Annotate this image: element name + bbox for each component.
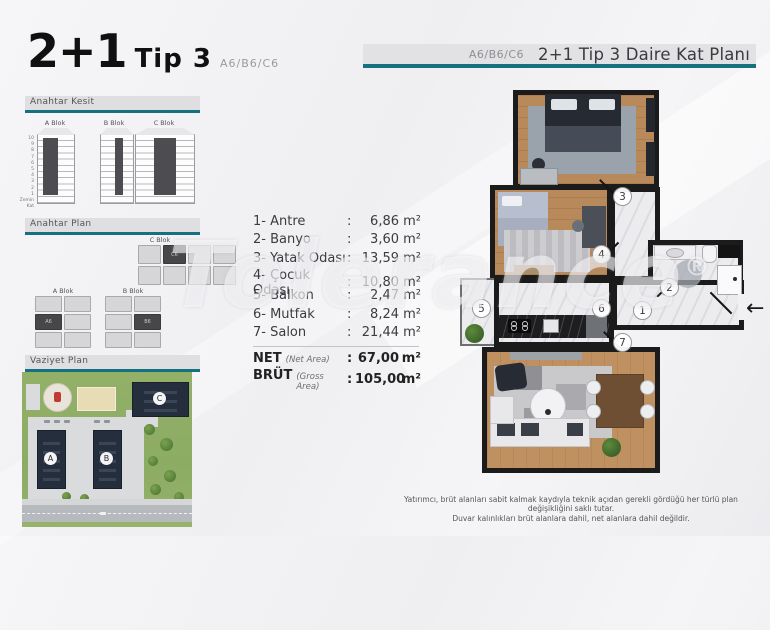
unit: m² (399, 251, 421, 266)
key-unit (105, 296, 132, 312)
room-marker-5: 5 (472, 299, 491, 318)
room-row: 5- Balkon:2,47m² (253, 286, 421, 305)
sep: : (347, 372, 355, 387)
sep: : (347, 232, 355, 247)
key-unit (134, 296, 161, 312)
sep: : (347, 251, 355, 266)
unit: m² (399, 325, 421, 340)
highlight-column-b (115, 138, 123, 194)
sep: : (347, 351, 355, 366)
net-value: 67,00 (355, 351, 399, 366)
elevation-block-a (37, 134, 75, 204)
room-row: 2- Banyo:3,60m² (253, 231, 421, 250)
title-block: 2+1Tip 3A6/B6/C6 (27, 24, 279, 78)
sep: : (347, 288, 355, 303)
key-unit (163, 266, 186, 285)
room-area: 6,86 (355, 214, 399, 229)
room-label: 7- Salon (253, 325, 347, 340)
sports-court (77, 387, 116, 411)
tree (164, 470, 176, 482)
area-summary: NET(Net Area) : 67,00 m² BRÜT(Gross Area… (253, 349, 421, 386)
disclaimer-line2: Duvar kalınlıkları brüt alanlara dahil, … (382, 514, 760, 523)
bed-double (545, 94, 621, 152)
site-plan: A B C (22, 372, 192, 527)
kitchen-sink (543, 319, 559, 333)
elev-a-label: A Blok (25, 119, 85, 127)
elevation-key: 10 9 8 7 6 5 4 3 2 1 Zemin Kat A Blok B … (14, 116, 200, 208)
room-list: 1- Antre:6,86m² 2- Banyo:3,60m² 3- Yatak… (253, 212, 421, 342)
dresser (520, 168, 558, 185)
car (54, 420, 60, 423)
key-block-a: A6 (35, 296, 91, 348)
key-unit-highlight: C6 (163, 245, 186, 264)
car (64, 420, 70, 423)
key-unit (138, 266, 161, 285)
unit: m² (399, 351, 421, 366)
disclaimer: Yatırımcı, brüt alanları sabit kalmak ka… (382, 495, 760, 523)
key-block-b: B6 (105, 296, 161, 348)
sep: : (347, 214, 355, 229)
site-label-a: A (44, 452, 57, 465)
bath-cabinet (718, 245, 740, 258)
fridge (586, 315, 607, 338)
tree (160, 438, 173, 451)
tv-console (510, 352, 582, 360)
wardrobe (646, 142, 655, 176)
site-label-c: C (153, 392, 166, 405)
page-title-units: A6/B6/C6 (220, 57, 279, 70)
unit: m² (399, 214, 421, 229)
page-title-sub: Tip 3 (135, 44, 212, 74)
sofa-chaise (490, 396, 514, 424)
car (104, 420, 110, 423)
key-unit (213, 245, 236, 264)
room-label: 3- Yatak Odası (253, 251, 347, 266)
room-marker-1: 1 (633, 301, 652, 320)
entry-arrow: ← (746, 298, 764, 320)
net-label: NET (253, 351, 282, 366)
ground-floor-label: Zemin Kat (14, 198, 34, 210)
room-area: 21,44 (355, 325, 399, 340)
sep: : (347, 307, 355, 322)
room-row: 3- Yatak Odası:13,59m² (253, 249, 421, 268)
child-desk (582, 206, 606, 248)
divider (253, 346, 419, 347)
tree (150, 484, 161, 495)
room-row: 1- Antre:6,86m² (253, 212, 421, 231)
dining-table (596, 374, 644, 428)
room-marker-4: 4 (592, 245, 611, 264)
brut-note: (Gross Area) (296, 372, 347, 392)
key-block-c: C6 (138, 245, 236, 285)
shower (717, 265, 742, 295)
site-pad (26, 384, 40, 410)
net-note: (Net Area) (286, 355, 330, 365)
playground (43, 383, 72, 412)
dining-chair (586, 380, 601, 395)
key-unit (105, 332, 132, 348)
key-unit (35, 332, 62, 348)
road-line (22, 513, 192, 514)
room-area: 2,47 (355, 288, 399, 303)
key-unit (64, 296, 91, 312)
key-unit-highlight: A6 (35, 314, 62, 330)
unit: m² (399, 372, 421, 387)
room-label: 1- Antre (253, 214, 347, 229)
sideboard (514, 265, 554, 274)
plant (602, 438, 621, 457)
room-marker-3: 3 (613, 187, 632, 206)
unit: m² (399, 288, 421, 303)
room-row: 7- Salon:21,44m² (253, 324, 421, 343)
section-header-vaziyet-plan: Vaziyet Plan (25, 355, 200, 372)
room-row: 6- Mutfak:8,24m² (253, 305, 421, 324)
room-label: 2- Banyo (253, 232, 347, 247)
wardrobe (646, 98, 655, 132)
road (22, 505, 192, 522)
desk-chair (572, 220, 584, 232)
tree (148, 456, 158, 466)
highlight-column-a (43, 138, 58, 194)
room-area: 3,60 (355, 232, 399, 247)
plant (465, 324, 484, 343)
room-label: 6- Mutfak (253, 307, 347, 322)
room-row: 4- Çocuk Odası:10,80m² (253, 268, 421, 287)
plan-header-title: 2+1 Tip 3 Daire Kat Planı (538, 45, 750, 64)
room-area: 13,59 (355, 251, 399, 266)
key-unit-highlight: B6 (134, 314, 161, 330)
key-unit (134, 332, 161, 348)
key-unit (35, 296, 62, 312)
key-a-label: A Blok (33, 287, 93, 295)
bath-counter (654, 245, 696, 260)
key-unit (64, 332, 91, 348)
site-label-b: B (100, 452, 113, 465)
key-unit (105, 314, 132, 330)
roof (100, 128, 134, 135)
key-unit (188, 245, 211, 264)
toilet (702, 245, 717, 263)
plan-header-units: A6/B6/C6 (469, 48, 524, 61)
elev-c-label: C Blok (134, 119, 194, 127)
section-header-anahtar-plan: Anahtar Plan (25, 218, 200, 235)
key-unit (213, 266, 236, 285)
armchair (494, 362, 527, 392)
key-b-label: B Blok (103, 287, 163, 295)
roof (135, 128, 195, 135)
room-area: 8,24 (355, 307, 399, 322)
brut-area-row: BRÜT(Gross Area) : 105,00 m² (253, 368, 421, 387)
car (94, 420, 100, 423)
elevation-block-c (135, 134, 195, 204)
room-marker-2: 2 (660, 278, 679, 297)
key-unit (64, 314, 91, 330)
elevation-block-b (100, 134, 134, 204)
room-marker-7: 7 (613, 333, 632, 352)
page-title-main: 2+1 (27, 24, 127, 78)
car (44, 420, 50, 423)
room-label: 5- Balkon (253, 288, 347, 303)
net-area-row: NET(Net Area) : 67,00 m² (253, 349, 421, 368)
kitchen-counter (499, 315, 609, 338)
car (100, 512, 106, 515)
key-unit (138, 245, 161, 264)
dining-chair (586, 404, 601, 419)
room-marker-6: 6 (592, 299, 611, 318)
section-header-anahtar-kesit: Anahtar Kesit (25, 96, 200, 113)
play-equipment (54, 392, 61, 402)
dining-chair (640, 404, 655, 419)
key-unit (188, 266, 211, 285)
unit: m² (399, 307, 421, 322)
dining-chair (640, 380, 655, 395)
sep: : (347, 325, 355, 340)
floor-numbers: 10 9 8 7 6 5 4 3 2 1 Zemin Kat (14, 136, 34, 210)
brut-value: 105,00 (355, 372, 399, 387)
brut-label: BRÜT (253, 368, 292, 383)
plan-header-bar: A6/B6/C6 2+1 Tip 3 Daire Kat Planı (363, 44, 756, 68)
floor-plan: 1 2 3 4 5 6 7 ← (450, 88, 760, 480)
tree (144, 424, 155, 435)
disclaimer-line1: Yatırımcı, brüt alanları sabit kalmak ka… (382, 495, 760, 514)
unit: m² (399, 232, 421, 247)
highlight-column-c (154, 138, 176, 194)
roof (37, 128, 75, 135)
entry-opening (738, 294, 746, 320)
key-c-label: C Blok (130, 236, 190, 244)
